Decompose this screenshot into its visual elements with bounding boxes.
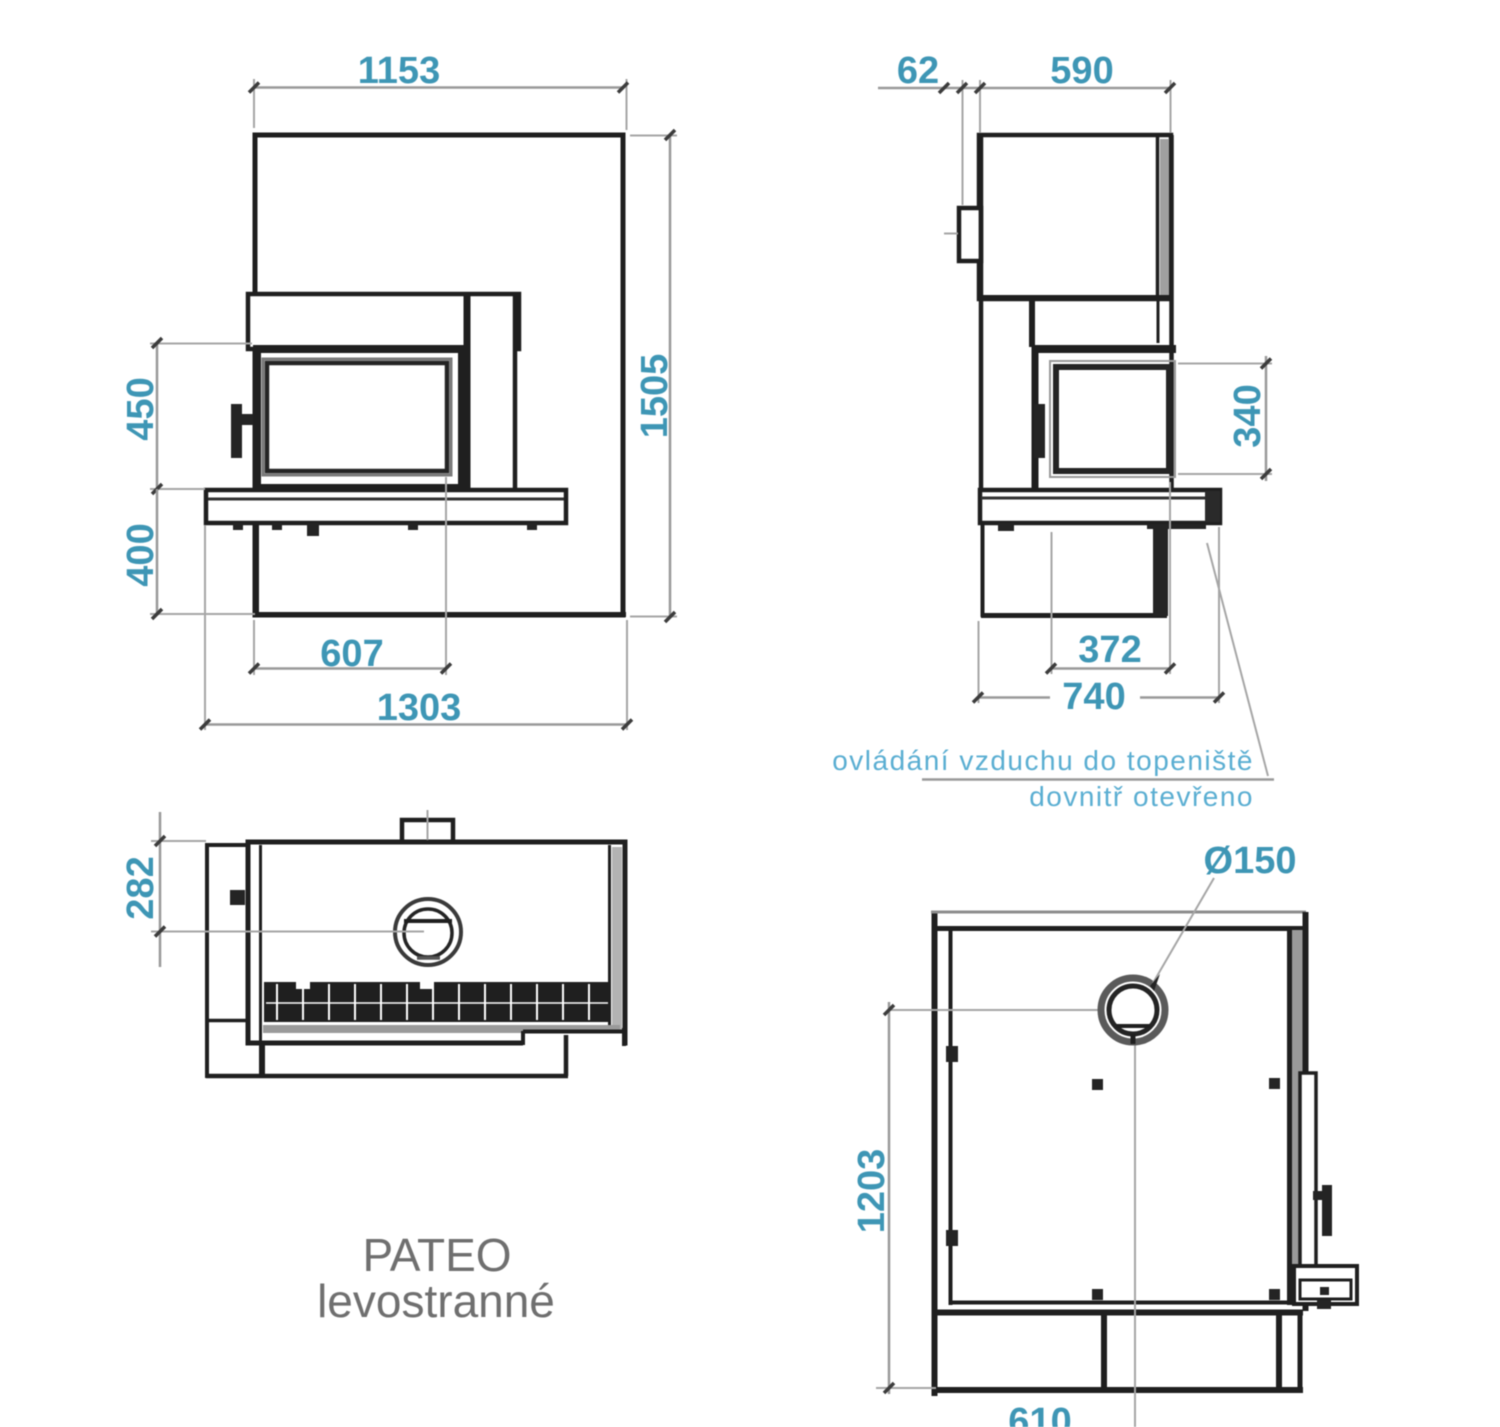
- svg-text:372: 372: [1078, 629, 1141, 671]
- svg-text:400: 400: [120, 523, 162, 586]
- svg-text:740: 740: [1062, 676, 1125, 718]
- svg-text:450: 450: [120, 377, 162, 440]
- svg-text:PATEO: PATEO: [362, 1229, 511, 1281]
- svg-text:ovládání vzduchu do topeniště: ovládání vzduchu do topeniště: [832, 745, 1254, 776]
- svg-text:610: 610: [1008, 1401, 1071, 1427]
- svg-text:340: 340: [1227, 384, 1269, 447]
- svg-text:1153: 1153: [358, 50, 440, 92]
- svg-text:590: 590: [1050, 50, 1113, 92]
- svg-text:1203: 1203: [851, 1149, 893, 1234]
- svg-text:dovnitř otevřeno: dovnitř otevřeno: [1029, 781, 1254, 812]
- svg-text:607: 607: [320, 633, 383, 675]
- svg-text:62: 62: [897, 50, 939, 92]
- svg-text:levostranné: levostranné: [317, 1275, 555, 1327]
- svg-text:Ø150: Ø150: [1204, 840, 1297, 882]
- svg-text:1303: 1303: [377, 687, 462, 729]
- svg-text:282: 282: [120, 856, 162, 919]
- svg-text:1505: 1505: [634, 354, 676, 439]
